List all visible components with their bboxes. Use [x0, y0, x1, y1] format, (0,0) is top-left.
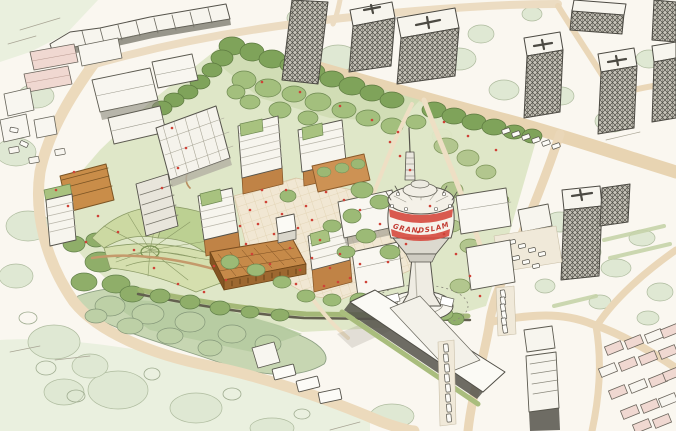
highrise-2-body — [349, 18, 395, 72]
highrise-10-body — [600, 184, 630, 226]
west-tower-body — [46, 194, 76, 246]
masterplan-illustration: GRANDSLAM — [0, 0, 676, 431]
white-shed-4 — [34, 116, 57, 138]
slab-building-south — [526, 352, 559, 412]
highrise-8-body — [652, 58, 676, 122]
highrise-6-body — [598, 66, 637, 134]
service-shed-east-a — [456, 188, 511, 234]
highrise-5-body — [524, 50, 563, 118]
service-shed-east-b — [466, 240, 515, 290]
highrise-7-body — [652, 0, 676, 42]
extension-box — [524, 326, 555, 352]
tower-pod-neck — [406, 254, 436, 262]
masterplan-canvas: GRANDSLAM — [0, 0, 676, 431]
parking-strip-b — [438, 340, 456, 426]
tower-dome-cap — [411, 180, 429, 188]
slab-south-dark-base — [529, 408, 560, 431]
highrise-9-body — [561, 206, 602, 280]
